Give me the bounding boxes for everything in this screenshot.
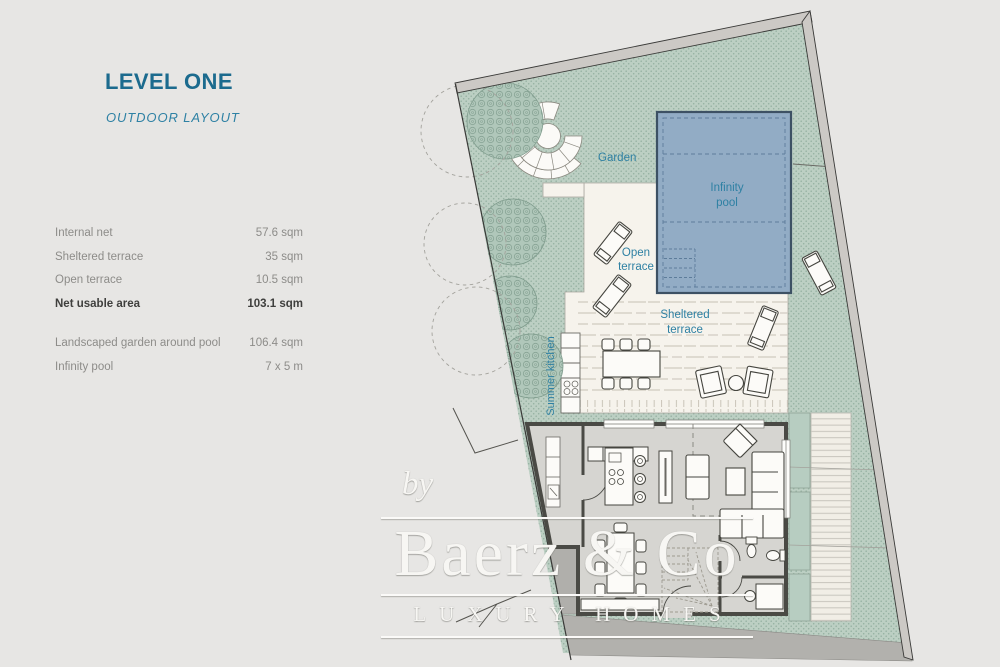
watermark-prefix: by xyxy=(402,466,433,503)
terrace-armchair xyxy=(743,366,773,398)
table-row: Sheltered terrace 35 sqm xyxy=(55,250,303,264)
row-label: Internal net xyxy=(55,226,113,240)
terrace-armchair xyxy=(695,366,726,399)
page-subtitle: OUTDOOR LAYOUT xyxy=(106,110,240,125)
sheltered-terrace-label-1: Sheltered xyxy=(660,309,709,321)
infinity-pool-label-2: pool xyxy=(716,197,738,209)
sheltered-terrace-label-2: terrace xyxy=(667,324,703,336)
row-label: Net usable area xyxy=(55,297,140,311)
table-row: Internal net 57.6 sqm xyxy=(55,226,303,240)
open-terrace-label-2: terrace xyxy=(618,261,654,273)
tv-unit xyxy=(659,451,672,503)
outdoor-dining-table xyxy=(603,351,660,377)
floor-plan-page: Garden Infinity pool Open terrace Shelte… xyxy=(0,0,1000,667)
area-table: Internal net 57.6 sqm Sheltered terrace … xyxy=(55,226,303,383)
row-value: 7 x 5 m xyxy=(265,360,303,374)
row-value: 106.4 sqm xyxy=(249,336,303,350)
pantry-cabinets xyxy=(546,437,560,507)
row-label: Landscaped garden around pool xyxy=(55,336,221,350)
row-value: 35 sqm xyxy=(265,250,303,264)
open-terrace-label-1: Open xyxy=(622,247,650,259)
coffee-table xyxy=(726,468,745,495)
table-row: Infinity pool 7 x 5 m xyxy=(55,360,303,374)
row-value: 103.1 sqm xyxy=(247,297,303,311)
watermark-rule xyxy=(381,636,753,638)
bar-stools xyxy=(635,456,646,503)
row-value: 10.5 sqm xyxy=(256,273,303,287)
table-row: Open terrace 10.5 sqm xyxy=(55,273,303,287)
info-panel: LEVEL ONE OUTDOOR LAYOUT Internal net 57… xyxy=(0,0,360,667)
planters xyxy=(789,413,810,621)
watermark-brand: Baerz & Co xyxy=(378,519,756,588)
table-row: Landscaped garden around pool 106.4 sqm xyxy=(55,336,303,350)
page-title: LEVEL ONE xyxy=(105,69,233,95)
deck-edge xyxy=(565,400,788,412)
summer-kitchen-unit xyxy=(561,333,580,413)
watermark-tagline: LUXURY HOMES xyxy=(381,602,753,627)
row-label: Infinity pool xyxy=(55,360,113,374)
infinity-pool-label-1: Infinity xyxy=(710,182,743,194)
row-label: Sheltered terrace xyxy=(55,250,143,264)
table-row-total: Net usable area 103.1 sqm xyxy=(55,297,303,311)
garden-label: Garden xyxy=(598,152,636,164)
summer-kitchen-label: Summer kitchen xyxy=(545,336,557,415)
row-value: 57.6 sqm xyxy=(256,226,303,240)
row-label: Open terrace xyxy=(55,273,122,287)
terrace-side-table xyxy=(729,376,744,391)
watermark-rule xyxy=(381,594,753,596)
